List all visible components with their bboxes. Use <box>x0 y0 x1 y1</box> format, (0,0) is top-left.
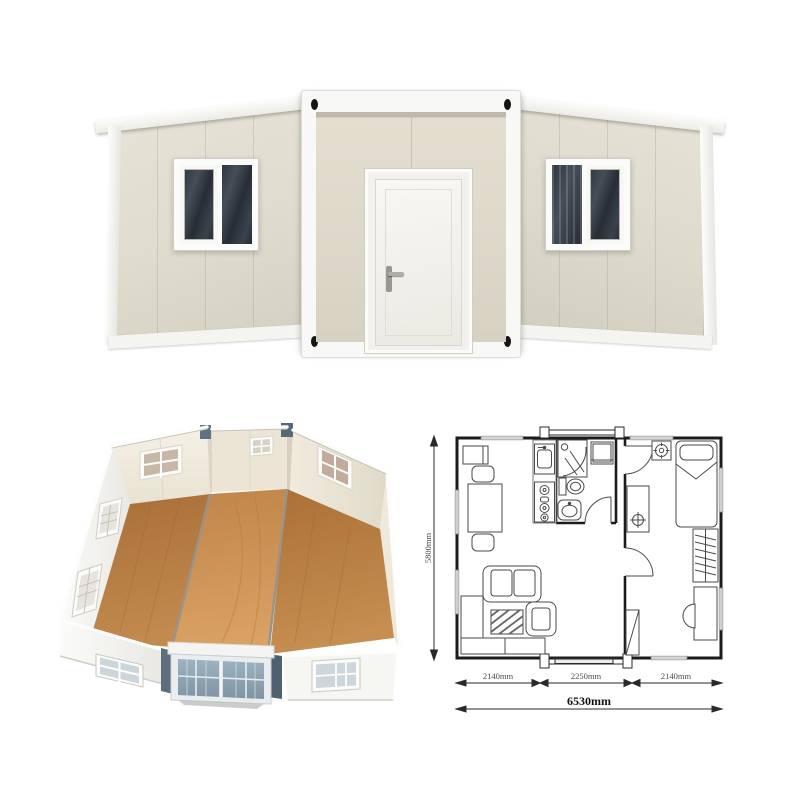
entry-door-frame <box>365 169 472 353</box>
module-front-wall <box>316 112 506 342</box>
corner-rack-icon <box>626 610 639 655</box>
left-exterior-window <box>96 498 122 539</box>
sofa-icon <box>483 566 541 602</box>
center-back-window <box>250 436 273 456</box>
ceiling-lamp-icon <box>652 441 671 460</box>
left-wing-window <box>173 158 259 251</box>
chair-icon <box>472 466 494 482</box>
interior-3d-view <box>50 392 430 728</box>
kitchen-sink-icon <box>535 444 555 474</box>
bay-window <box>161 642 282 709</box>
window-sash <box>180 165 218 244</box>
rear-corner-post <box>281 423 293 437</box>
bed-icon <box>676 441 717 527</box>
product-image: 5800mm 2140mm 2250mm 2140mm 6530mm <box>0 0 800 800</box>
dim-label-segment-left: 2140mm <box>483 671 514 681</box>
exterior-photo <box>0 0 800 400</box>
door-handle-lever <box>388 272 404 276</box>
dim-label-height: 5800mm <box>425 533 433 564</box>
dim-label-segment-center: 2250mm <box>571 671 602 681</box>
corner-casting-icon <box>504 99 511 110</box>
door-handle <box>386 266 392 292</box>
side-table-icon <box>627 486 649 532</box>
floor-plan: 5800mm 2140mm 2250mm 2140mm 6530mm <box>425 402 787 722</box>
door-panel-line <box>385 189 452 336</box>
cabinet-icon <box>463 446 488 464</box>
corner-casting-icon <box>311 99 318 110</box>
dim-label-segment-right: 2140mm <box>661 671 692 681</box>
center-container-module <box>302 91 520 357</box>
window-glass <box>222 165 252 244</box>
rug-icon <box>491 610 523 634</box>
right-wing-window <box>545 158 631 251</box>
wardrobe-icon <box>693 529 718 582</box>
front-right-window <box>312 658 360 692</box>
dim-label-total: 6530mm <box>567 694 611 708</box>
dining-table-icon <box>468 484 502 532</box>
kitchen-stove-icon <box>535 482 555 522</box>
floorplan-top-joint <box>540 427 624 438</box>
floorplan-kitchen <box>533 440 556 523</box>
window-sash <box>586 165 624 244</box>
armchair-icon <box>526 602 556 636</box>
chair-icon <box>472 534 494 551</box>
entry-door <box>375 179 462 346</box>
window-glass <box>552 165 582 244</box>
